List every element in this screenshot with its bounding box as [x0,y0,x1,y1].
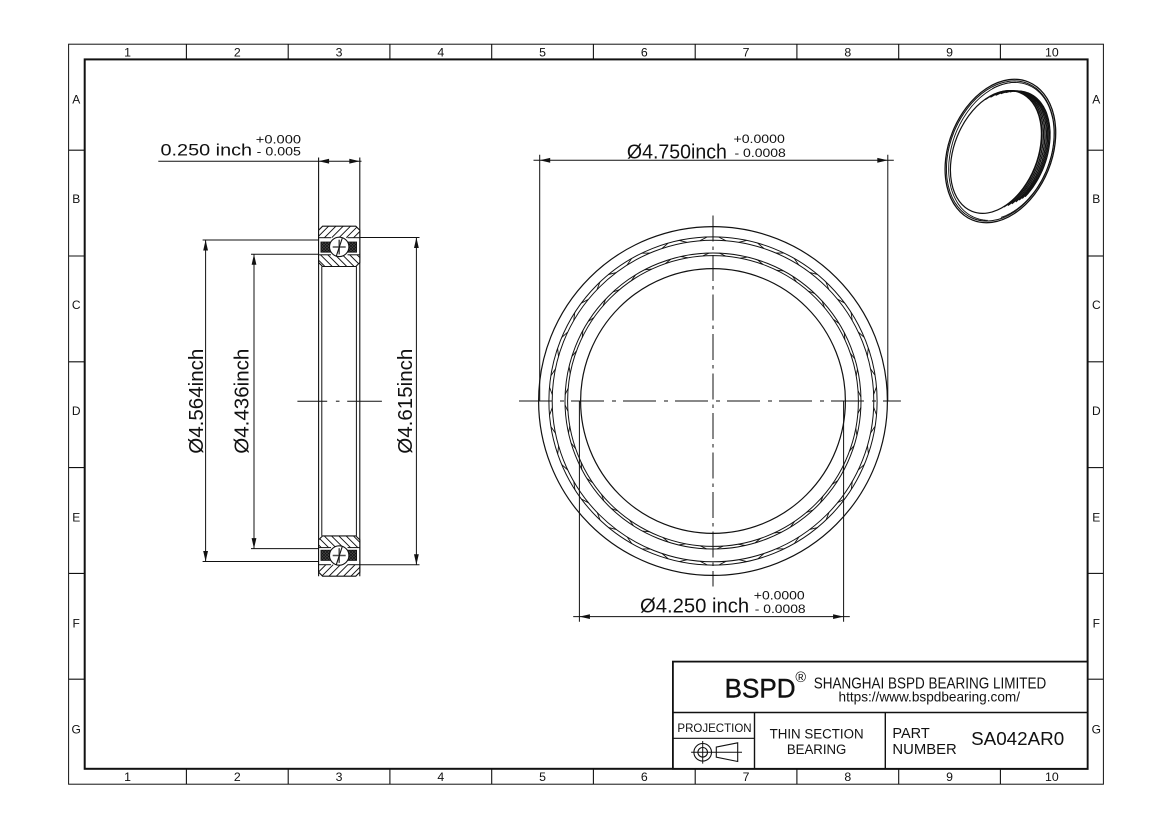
svg-text:4: 4 [437,770,444,784]
svg-text:C: C [1092,298,1101,312]
svg-text:Ø4.564inch: Ø4.564inch [185,349,208,454]
svg-text:6: 6 [641,770,648,784]
svg-text:9: 9 [946,45,953,59]
svg-text:G: G [72,723,81,737]
svg-text:D: D [72,404,81,418]
svg-text:3: 3 [336,45,343,59]
svg-text:Ø4.750inch: Ø4.750inch [627,140,727,163]
svg-text:4: 4 [437,45,444,59]
svg-text:A: A [1092,93,1100,107]
svg-text:F: F [1093,617,1100,631]
svg-text:+0.0000: +0.0000 [754,588,805,602]
svg-text:E: E [1092,510,1100,524]
svg-text:PROJECTION: PROJECTION [677,721,751,735]
svg-text:Ø4.436inch: Ø4.436inch [231,349,254,454]
svg-text:+0.0000: +0.0000 [734,132,785,146]
svg-text:- 0.0008: - 0.0008 [735,146,786,160]
svg-text:3: 3 [336,770,343,784]
svg-text:C: C [72,298,81,312]
svg-text:- 0.0008: - 0.0008 [755,602,806,616]
svg-text:Ø4.250 inch: Ø4.250 inch [640,594,749,617]
svg-text:2: 2 [234,770,241,784]
svg-text:10: 10 [1045,770,1059,784]
svg-text:https://www.bspdbearing.com/: https://www.bspdbearing.com/ [839,689,1021,705]
svg-text:1: 1 [124,770,131,784]
svg-text:10: 10 [1045,45,1059,59]
svg-text:- 0.005: - 0.005 [257,145,301,159]
svg-text:A: A [72,93,80,107]
svg-text:9: 9 [946,770,953,784]
svg-text:1: 1 [124,45,131,59]
svg-text:6: 6 [641,45,648,59]
svg-text:Ø4.615inch: Ø4.615inch [394,349,417,454]
svg-text:0.250 inch: 0.250 inch [161,141,253,160]
svg-text:THIN SECTION: THIN SECTION [770,727,864,743]
svg-text:BEARING: BEARING [787,742,847,758]
svg-text:F: F [73,617,80,631]
svg-text:®: ® [795,670,806,686]
svg-text:5: 5 [539,770,546,784]
svg-text:D: D [1092,404,1101,418]
svg-text:5: 5 [539,45,546,59]
svg-text:8: 8 [844,45,851,59]
svg-text:8: 8 [844,770,851,784]
svg-text:7: 7 [743,770,750,784]
svg-text:E: E [72,510,80,524]
svg-text:B: B [72,192,80,206]
svg-text:7: 7 [743,45,750,59]
svg-text:G: G [1092,723,1101,737]
svg-text:BSPD: BSPD [725,674,796,704]
svg-text:2: 2 [234,45,241,59]
svg-text:NUMBER: NUMBER [892,742,956,758]
svg-text:SA042AR0: SA042AR0 [971,728,1064,749]
svg-text:PART: PART [892,726,929,742]
svg-text:B: B [1092,192,1100,206]
